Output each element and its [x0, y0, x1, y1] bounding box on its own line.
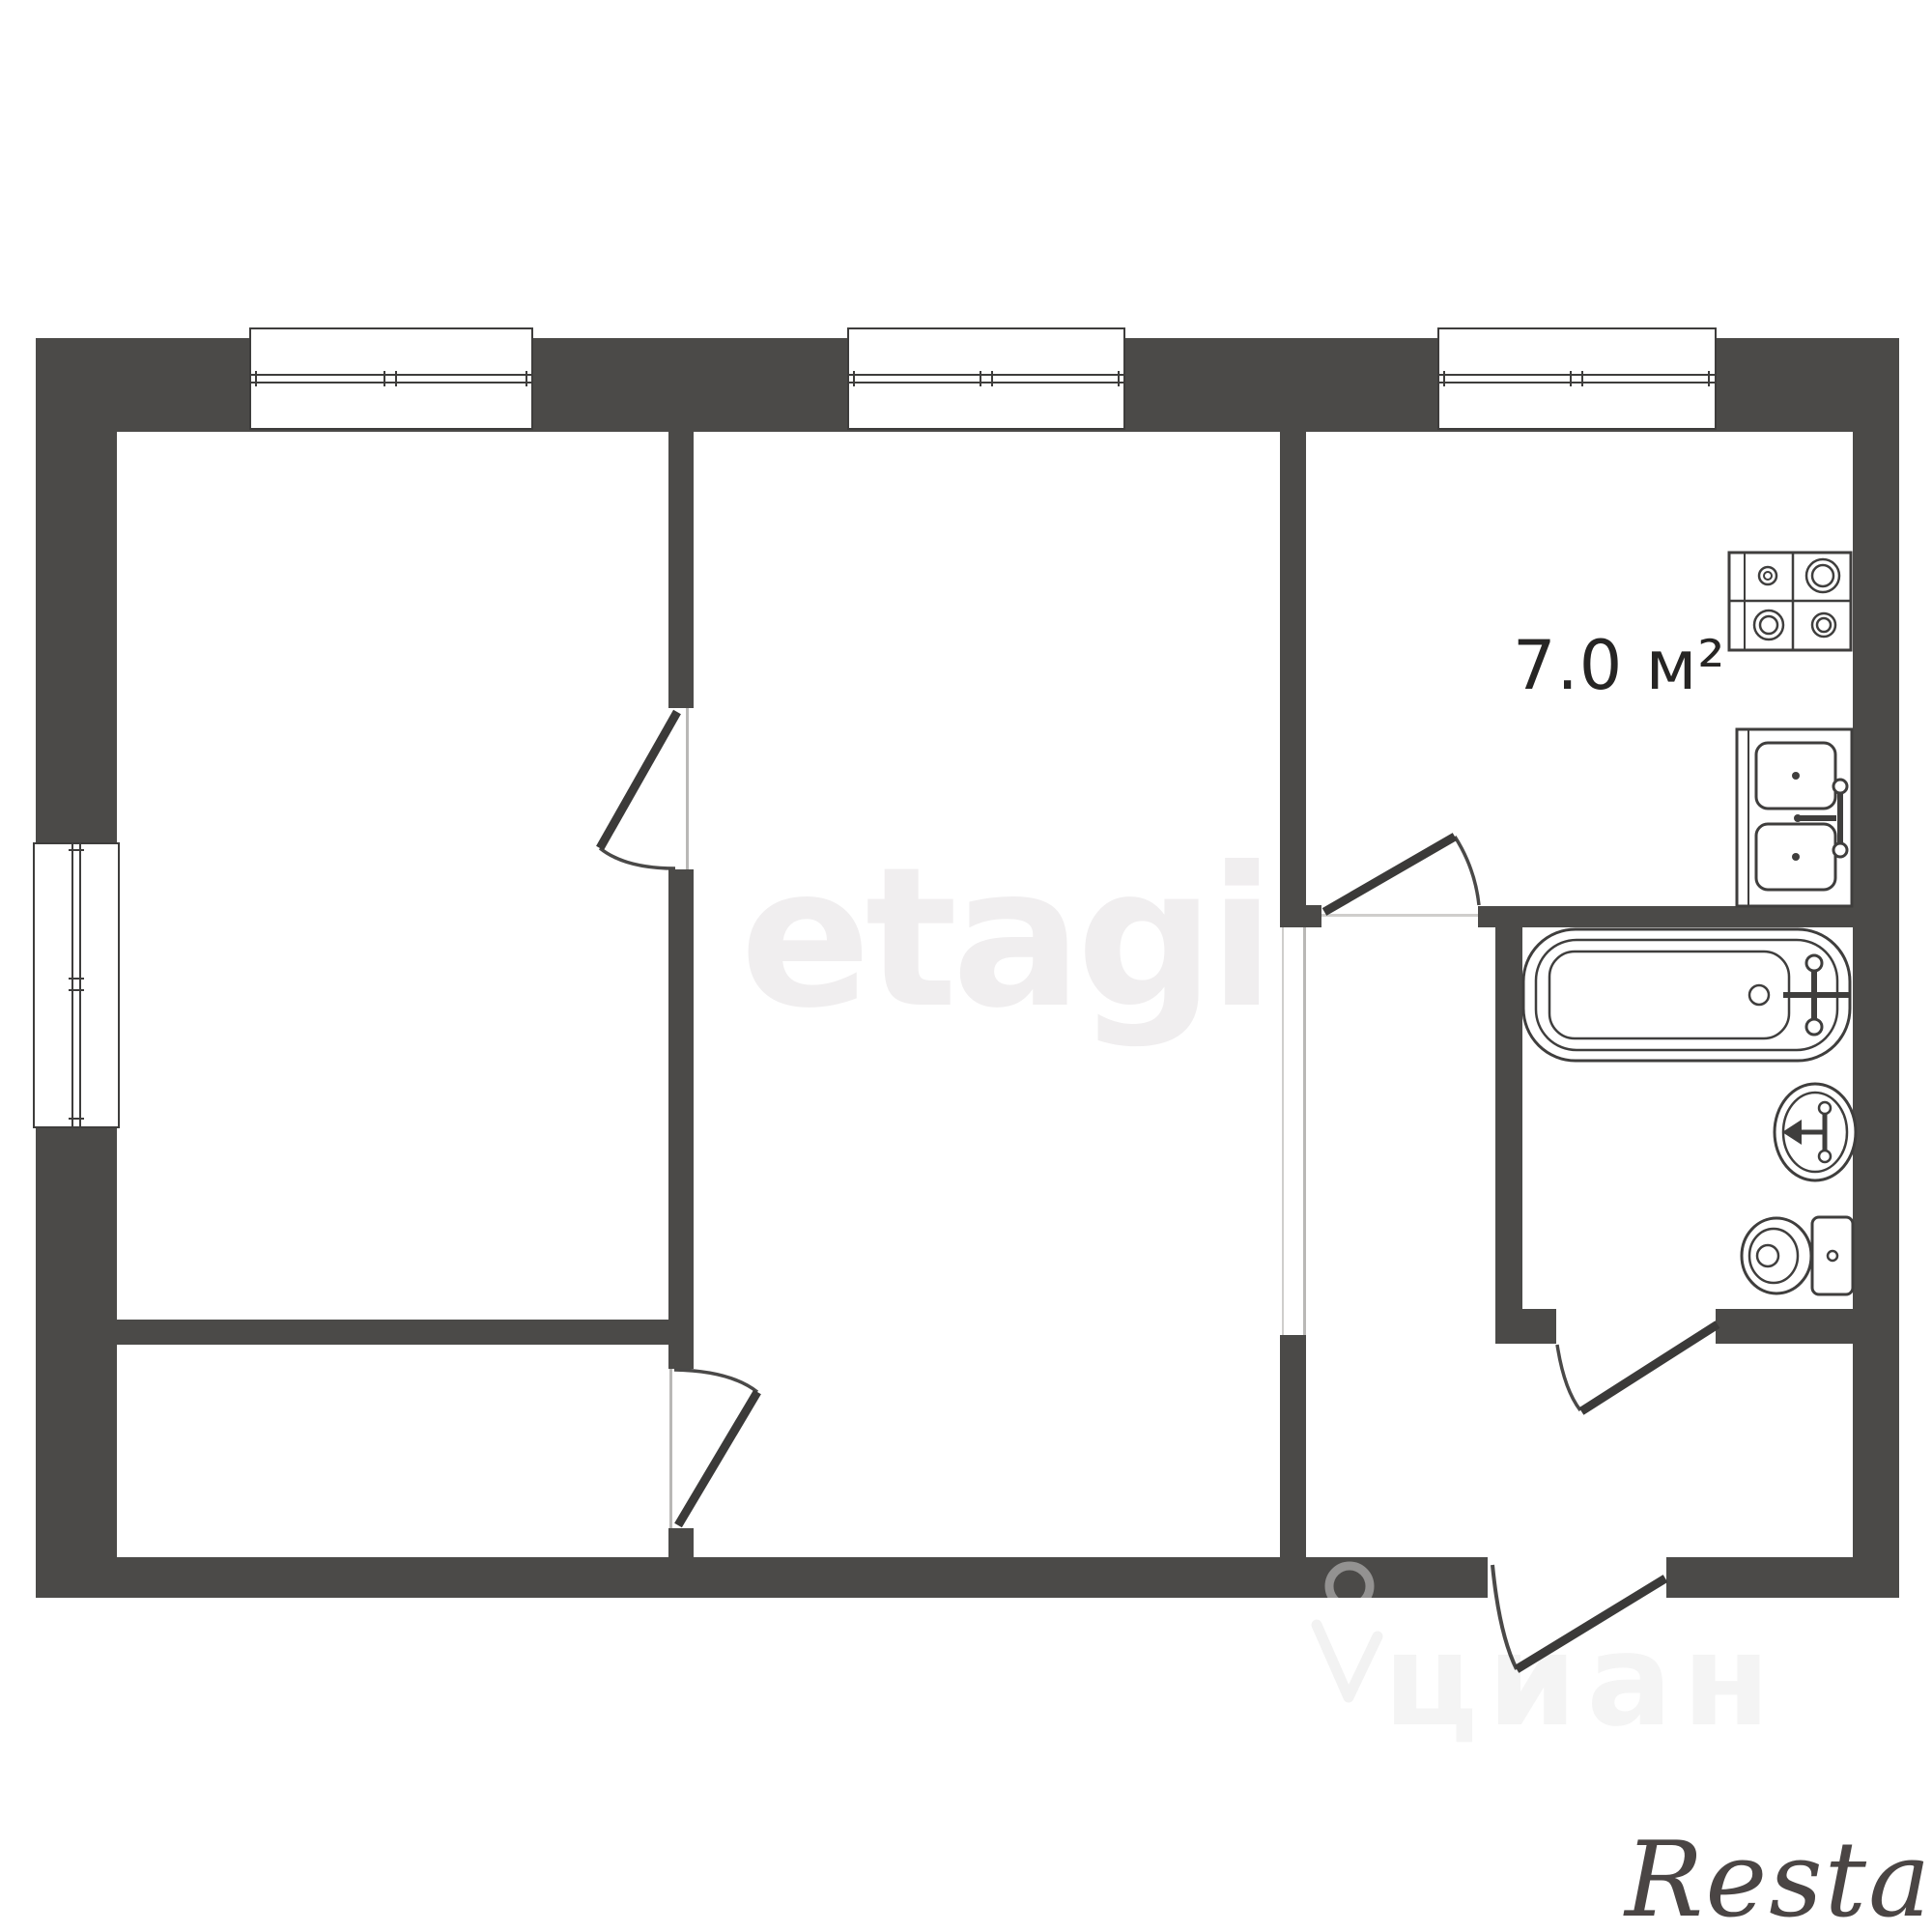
- window-tick: [69, 989, 84, 991]
- door-arc: [600, 848, 675, 868]
- door-arc: [1557, 1345, 1580, 1410]
- toilet-icon: [1742, 1217, 1853, 1294]
- stove-icon: [1729, 553, 1851, 650]
- window-tick: [980, 371, 981, 386]
- door-leaf: [1324, 837, 1455, 912]
- bathroom-door: [1557, 1324, 1718, 1411]
- window-tick: [69, 978, 84, 980]
- left-side-window-glazing: [71, 844, 81, 1126]
- wall-hall-divider-lower: [1280, 1335, 1306, 1557]
- wall-room-left-bottom: [117, 1320, 668, 1345]
- wall-right: [1853, 338, 1899, 1598]
- corridor-door-frame-line: [669, 1369, 672, 1528]
- window-tick: [69, 1118, 84, 1120]
- room-left-door: [600, 712, 677, 868]
- window-tick: [1118, 371, 1120, 386]
- wall-hall-divider-upper: [1280, 432, 1306, 905]
- restate-logo: Restate: [1625, 1829, 1932, 1932]
- top-window-center-glazing: [849, 374, 1123, 384]
- wall-bathroom-bottom-right: [1716, 1309, 1853, 1344]
- wall-room-divider-mid: [668, 869, 694, 1369]
- window-tick: [526, 371, 527, 386]
- wall-bathroom-bottom-left: [1495, 1309, 1556, 1344]
- wall-bottom-left-segment: [36, 1557, 1488, 1598]
- window-tick: [853, 371, 855, 386]
- door-leaf: [600, 712, 677, 848]
- wall-bottom-right-segment: [1666, 1557, 1899, 1598]
- kitchen-sink-icon: [1737, 729, 1852, 906]
- bathtub-icon: [1523, 929, 1850, 1061]
- top-window-right-glazing: [1439, 374, 1715, 384]
- wall-room-divider-upper: [668, 432, 694, 708]
- cian-watermark: циан: [1383, 1617, 1780, 1745]
- hall-opening-line-right: [1303, 927, 1306, 1335]
- door-arc: [674, 1370, 757, 1392]
- window-tick: [1581, 371, 1583, 386]
- window-tick: [255, 371, 257, 386]
- door-leaf: [678, 1392, 757, 1525]
- floorplan-canvas: etagi: [0, 0, 1932, 1932]
- wall-room-divider-stub: [668, 1528, 694, 1557]
- corridor-to-room-center-door: [674, 1370, 757, 1525]
- kitchen-door: [1324, 837, 1479, 912]
- window-tick: [384, 371, 385, 386]
- room-left-door-frame-line: [686, 708, 689, 869]
- kitchen-area-label: 7.0 м²: [1513, 626, 1725, 705]
- window-tick: [1708, 371, 1710, 386]
- etagi-watermark: etagi: [740, 842, 1269, 1036]
- wall-bathroom-left: [1495, 927, 1522, 1344]
- door-arc: [1455, 837, 1479, 905]
- washbasin-icon: [1775, 1084, 1856, 1180]
- window-tick: [1570, 371, 1572, 386]
- window-tick: [1443, 371, 1445, 386]
- window-tick: [991, 371, 993, 386]
- window-tick: [69, 849, 84, 851]
- door-leaf: [1581, 1324, 1718, 1411]
- kitchen-door-frame-line: [1321, 914, 1478, 917]
- wall-kitchen-door-stub: [1280, 905, 1321, 927]
- hall-opening-line-left: [1282, 927, 1284, 1335]
- top-window-left-glazing: [251, 374, 531, 384]
- window-tick: [395, 371, 397, 386]
- wall-bathroom-top: [1478, 906, 1853, 927]
